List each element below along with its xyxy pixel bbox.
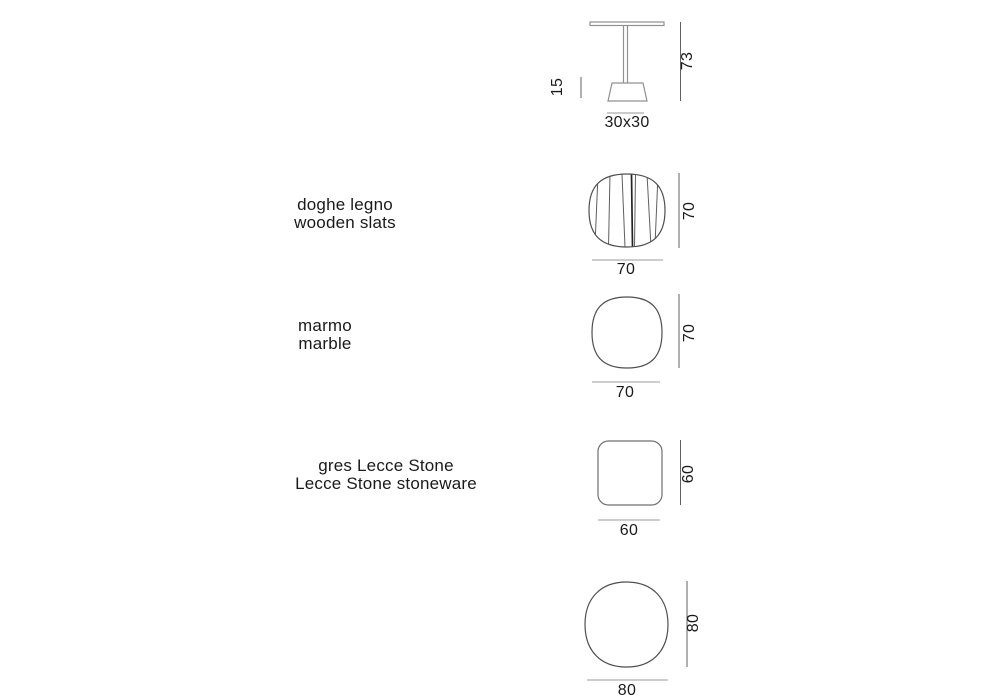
dim-label-marble-depth: 70 [681, 324, 699, 342]
dim-label-wood-depth: 70 [681, 202, 699, 220]
material-label-stoneware-it: gres Lecce Stone [295, 457, 477, 475]
table-side-view-drawing [590, 22, 664, 101]
tabletop-stoneware-outline [598, 441, 662, 505]
slat-line [647, 174, 651, 247]
tabletop-profile-shape [590, 22, 664, 26]
slat-line [609, 174, 611, 247]
wood-slat-lines [595, 174, 658, 247]
dim-label-large-width: 80 [618, 682, 636, 700]
material-label-wood-en: wooden slats [294, 214, 396, 232]
dim-label-stoneware-width: 60 [620, 522, 638, 540]
pedestal-base-shape [608, 83, 647, 101]
dim-label-top-size: 30x30 [604, 114, 649, 132]
tabletop-wood-outline [589, 174, 665, 247]
dim-label-wood-width: 70 [617, 261, 635, 279]
material-label-marble: marmo marble [298, 317, 352, 352]
dim-label-large-depth: 80 [685, 614, 703, 632]
slat-line [622, 174, 625, 247]
material-label-stoneware: gres Lecce Stone Lecce Stone stoneware [295, 457, 477, 492]
tabletop-marble-outline [592, 297, 662, 368]
tabletop-large-outline [585, 582, 668, 667]
dim-label-stoneware-depth: 60 [680, 465, 698, 483]
material-label-wood: doghe legno wooden slats [294, 196, 396, 231]
dim-label-marble-width: 70 [616, 384, 634, 402]
tabletop-wood-drawing [589, 174, 665, 247]
material-label-wood-it: doghe legno [294, 196, 396, 214]
diagram-line-art [0, 0, 1000, 700]
material-label-stoneware-en: Lecce Stone stoneware [295, 475, 477, 493]
slat-line [635, 174, 636, 247]
horizontal-dimension-lines [587, 260, 668, 680]
dimension-diagram: doghe legno wooden slats marmo marble gr… [0, 0, 1000, 700]
slat-line-dark [632, 174, 633, 247]
material-label-marble-en: marble [298, 335, 352, 353]
dim-label-base-height: 15 [549, 78, 567, 96]
dim-label-total-height: 73 [679, 52, 697, 70]
material-label-marble-it: marmo [298, 317, 352, 335]
